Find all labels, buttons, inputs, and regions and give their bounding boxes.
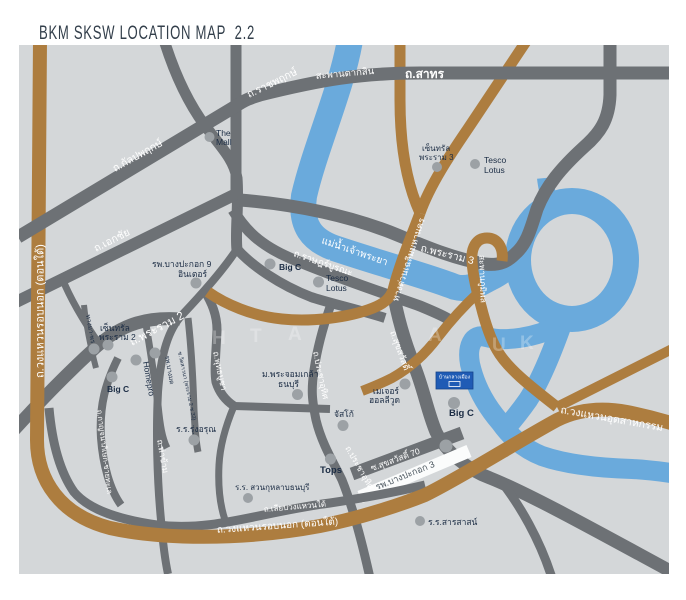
svg-text:ร.ร.สารสาสน์: ร.ร.สารสาสน์ [428,517,478,527]
svg-text:BKM SKSW LOCATION MAP 2.2: BKM SKSW LOCATION MAP 2.2 [39,23,255,44]
svg-text:Lotus: Lotus [484,165,505,175]
svg-text:Mall: Mall [216,137,232,147]
svg-text:รพ.บางปะกอก 9: รพ.บางปะกอก 9 [152,259,212,269]
svg-text:Big C: Big C [279,262,301,272]
svg-text:บ้านกลางเมือง: บ้านกลางเมือง [439,374,471,381]
svg-text:ม.พระจอมเกล้า: ม.พระจอมเกล้า [262,369,318,379]
svg-text:พระราม 3: พระราม 3 [419,153,454,162]
svg-text:ฮอลลีวูด: ฮอลลีวูด [369,395,400,406]
svg-text:Tesco: Tesco [326,273,348,283]
svg-text:H: H [212,328,226,349]
svg-text:จัสโก้: จัสโก้ [334,409,354,419]
svg-text:T: T [250,326,262,347]
svg-text:ธนบุรี: ธนบุรี [278,379,299,390]
svg-text:ร.ร.รุ่งอรุณ: ร.ร.รุ่งอรุณ [176,424,216,435]
svg-text:เซ็นทรัล: เซ็นทรัล [422,143,450,153]
svg-text:Big C: Big C [449,408,474,419]
svg-text:Big C: Big C [107,384,129,394]
svg-text:ร.ร. สวนกุหลาบธนบุรี: ร.ร. สวนกุหลาบธนบุรี [235,483,310,492]
svg-text:อินเตอร์: อินเตอร์ [178,269,207,279]
svg-text:ถ.สาทร: ถ.สาทร [405,67,445,81]
svg-text:A: A [428,325,442,346]
svg-text:U: U [492,335,506,356]
svg-text:K: K [520,333,534,354]
svg-text:A: A [288,324,302,345]
svg-text:Tesco: Tesco [484,155,506,165]
svg-text:Tops: Tops [320,465,342,476]
svg-text:Lotus: Lotus [326,283,347,293]
svg-text:ถ.วงแหวนรอบนอก (ตอนใต้): ถ.วงแหวนรอบนอก (ตอนใต้) [34,244,47,378]
svg-text:พระราม 2: พระราม 2 [99,332,136,342]
